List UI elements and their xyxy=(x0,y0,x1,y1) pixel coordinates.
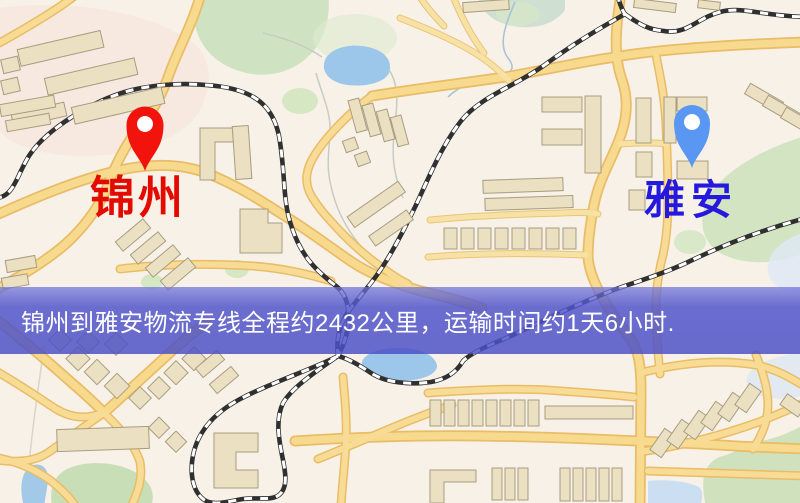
banner-text: 锦州到雅安物流专线全程约2432公里，运输时间约1天6小时. xyxy=(0,303,675,338)
map-screenshot: 锦州 雅安 锦州到雅安物流专线全程约2432公里，运输时间约1天6小时. xyxy=(0,0,800,503)
destination-label: 雅安 xyxy=(644,180,738,221)
destination-pin-icon xyxy=(670,101,714,171)
origin-pin-hole xyxy=(137,116,153,132)
destination-pin-hole xyxy=(684,114,700,130)
map-image xyxy=(0,0,800,503)
origin-pin-icon xyxy=(123,103,167,173)
info-banner: 锦州到雅安物流专线全程约2432公里，运输时间约1天6小时. xyxy=(0,287,800,354)
origin-label: 锦州 xyxy=(90,176,186,221)
